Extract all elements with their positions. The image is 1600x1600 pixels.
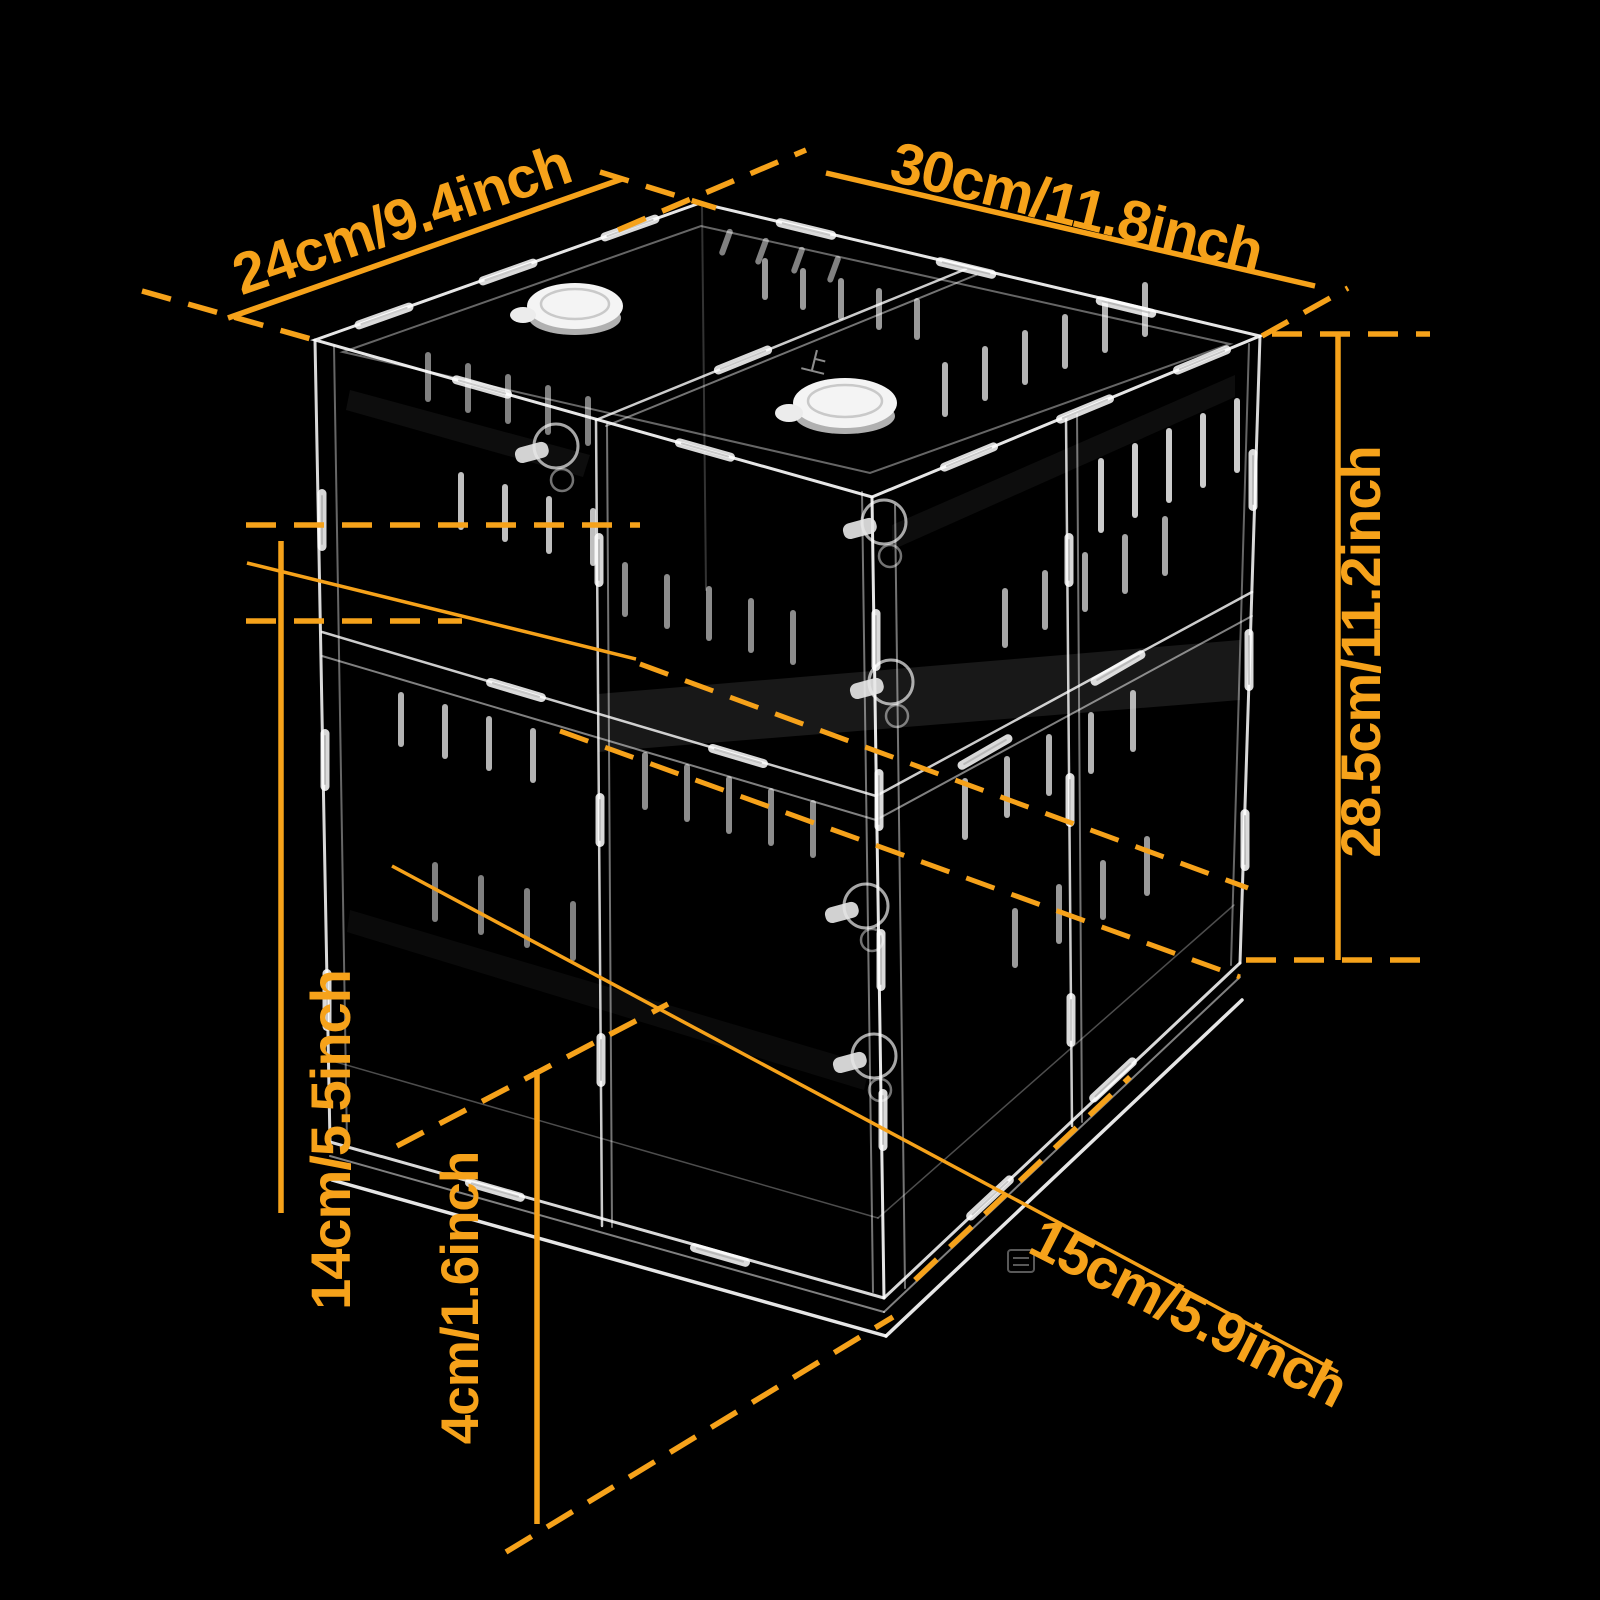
vent-slot	[748, 598, 754, 653]
vent-slot	[962, 778, 968, 840]
vent-slot	[1012, 908, 1018, 968]
vent-slot	[1166, 428, 1172, 503]
reflection-streak	[347, 910, 870, 1090]
edge-latches	[318, 213, 1258, 1268]
vent-slot	[458, 472, 464, 530]
vent-slot	[838, 278, 844, 320]
acrylic-enclosure-diagram: 上	[0, 0, 1600, 1600]
edge-latch-groove	[875, 615, 877, 665]
vent-slot	[585, 396, 591, 446]
vent-slot	[530, 728, 536, 783]
vent-slot	[762, 258, 768, 300]
edge-latch-groove	[599, 799, 601, 841]
vent-slot	[914, 298, 920, 340]
dim-label-lower-compartment-height: 14cm/5.5inch	[299, 970, 362, 1310]
ext-dash-width-right	[1262, 288, 1348, 336]
vent-slot	[1122, 534, 1128, 594]
ext-dash-depth-right	[600, 172, 716, 208]
vent-slot	[800, 268, 806, 310]
vent-slot	[1234, 398, 1240, 473]
edge-latch-groove	[600, 1039, 602, 1081]
vent-slot	[790, 610, 796, 665]
vent-slot	[982, 346, 988, 401]
dim-label-base-height: 4cm/1.6inch	[431, 1152, 490, 1444]
edge-latch-groove	[1070, 999, 1072, 1041]
product-dimension-diagram: 上	[0, 0, 1600, 1600]
vent-slot	[1098, 458, 1104, 533]
ext-dash-base-bottom	[506, 1317, 893, 1552]
edge-latch-groove	[1252, 455, 1254, 505]
vent-slot	[425, 352, 431, 402]
edge-latch-groove	[719, 350, 766, 371]
edge-latch-groove	[492, 682, 541, 698]
vent-slot	[642, 752, 648, 810]
edge-latch-groove	[946, 447, 993, 468]
vent-slot	[1046, 734, 1052, 796]
vent-slot	[478, 875, 484, 935]
vent-slot	[706, 586, 712, 641]
dim-label-height: 28.5cm/11.2inch	[1329, 446, 1392, 858]
vent-slot	[810, 800, 816, 858]
vent-slot	[570, 901, 576, 961]
vent-slot	[1130, 690, 1136, 752]
edge-latch-groove	[324, 735, 326, 785]
vent-slot	[1144, 836, 1150, 896]
vent-slot	[1042, 570, 1048, 630]
edge-latch-groove	[321, 495, 323, 545]
dim-pointer-shelf	[247, 563, 636, 659]
vent-slot	[1022, 330, 1028, 385]
top-face-etched-marking: 上	[798, 346, 831, 381]
vent-slot	[876, 288, 882, 330]
vent-slot	[502, 484, 508, 542]
edge-latch-groove	[878, 775, 880, 825]
edge-latch-groove	[484, 263, 532, 282]
vent-slot	[768, 788, 774, 846]
vent-slot	[1082, 552, 1088, 612]
vent-slot	[942, 362, 948, 417]
vent-slot	[1162, 516, 1168, 576]
vent-slot	[1062, 314, 1068, 369]
vent-slot	[726, 776, 732, 834]
vent-slot	[1200, 413, 1206, 488]
vent-slot	[1100, 860, 1106, 920]
vent-slot	[1088, 712, 1094, 774]
edge-latch-groove	[714, 748, 763, 764]
dim-label-depth: 24cm/9.4inch	[225, 131, 579, 307]
vent-slot	[664, 574, 670, 629]
ext-dash-base-top	[397, 1004, 668, 1146]
vent-slot	[398, 692, 404, 747]
edge-latch-groove	[882, 1095, 884, 1145]
feeding-hole-cap	[775, 378, 897, 434]
vent-slot	[1002, 588, 1008, 648]
vent-slot	[505, 374, 511, 424]
edge-latch-groove	[360, 307, 408, 326]
edge-latch-groove	[598, 539, 600, 581]
edge-latch-groove	[1244, 815, 1246, 865]
edge-latch-groove	[1069, 779, 1071, 821]
edge-latch-groove	[1248, 635, 1250, 685]
edge-latch-groove	[606, 219, 654, 238]
vent-slot	[684, 764, 690, 822]
vent-slot	[622, 562, 628, 617]
vent-slot	[486, 716, 492, 771]
feeding-hole-cap	[510, 283, 623, 335]
box-vertical-edges	[315, 205, 1260, 1298]
edge-latch-groove	[1068, 539, 1070, 581]
dim-label-compartment-width: 15cm/5.9inch	[1020, 1206, 1357, 1420]
vent-slot	[1004, 756, 1010, 818]
vent-slot	[442, 704, 448, 759]
vent-slot	[1132, 443, 1138, 518]
